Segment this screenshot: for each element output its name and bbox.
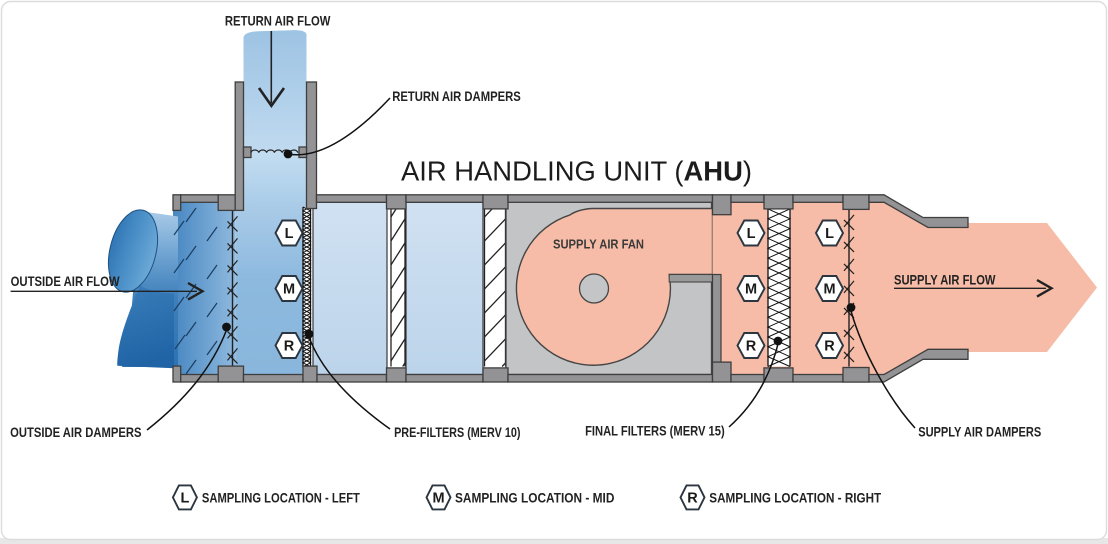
svg-text:OUTSIDE AIR DAMPERS: OUTSIDE AIR DAMPERS	[10, 424, 141, 440]
svg-text:AIR HANDLING UNIT (AHU): AIR HANDLING UNIT (AHU)	[401, 156, 752, 187]
svg-text:SUPPLY AIR FLOW: SUPPLY AIR FLOW	[894, 272, 996, 288]
svg-text:SUPPLY AIR FAN: SUPPLY AIR FAN	[553, 236, 644, 251]
svg-text:M: M	[432, 491, 444, 507]
svg-text:SAMPLING LOCATION - MID: SAMPLING LOCATION - MID	[455, 489, 614, 505]
svg-text:FINAL FILTERS (MERV 15): FINAL FILTERS (MERV 15)	[585, 423, 725, 439]
svg-text:OUTSIDE AIR FLOW: OUTSIDE AIR FLOW	[11, 273, 121, 289]
svg-text:R: R	[746, 339, 757, 355]
svg-text:M: M	[745, 282, 757, 298]
svg-text:L: L	[747, 226, 756, 242]
svg-text:L: L	[180, 491, 189, 507]
svg-text:RETURN AIR FLOW: RETURN AIR FLOW	[225, 13, 331, 29]
svg-text:SAMPLING LOCATION - LEFT: SAMPLING LOCATION - LEFT	[202, 489, 360, 505]
svg-text:M: M	[283, 282, 295, 298]
svg-text:SAMPLING LOCATION - RIGHT: SAMPLING LOCATION - RIGHT	[709, 489, 881, 505]
svg-text:R: R	[687, 491, 698, 507]
svg-text:L: L	[825, 226, 834, 242]
svg-text:PRE-FILTERS (MERV 10): PRE-FILTERS (MERV 10)	[394, 424, 520, 440]
svg-text:M: M	[823, 282, 835, 298]
svg-text:L: L	[285, 226, 294, 242]
svg-text:R: R	[284, 339, 295, 355]
svg-text:R: R	[824, 339, 835, 355]
svg-text:RETURN AIR DAMPERS: RETURN AIR DAMPERS	[392, 88, 521, 104]
svg-text:SUPPLY AIR DAMPERS: SUPPLY AIR DAMPERS	[918, 424, 1041, 440]
